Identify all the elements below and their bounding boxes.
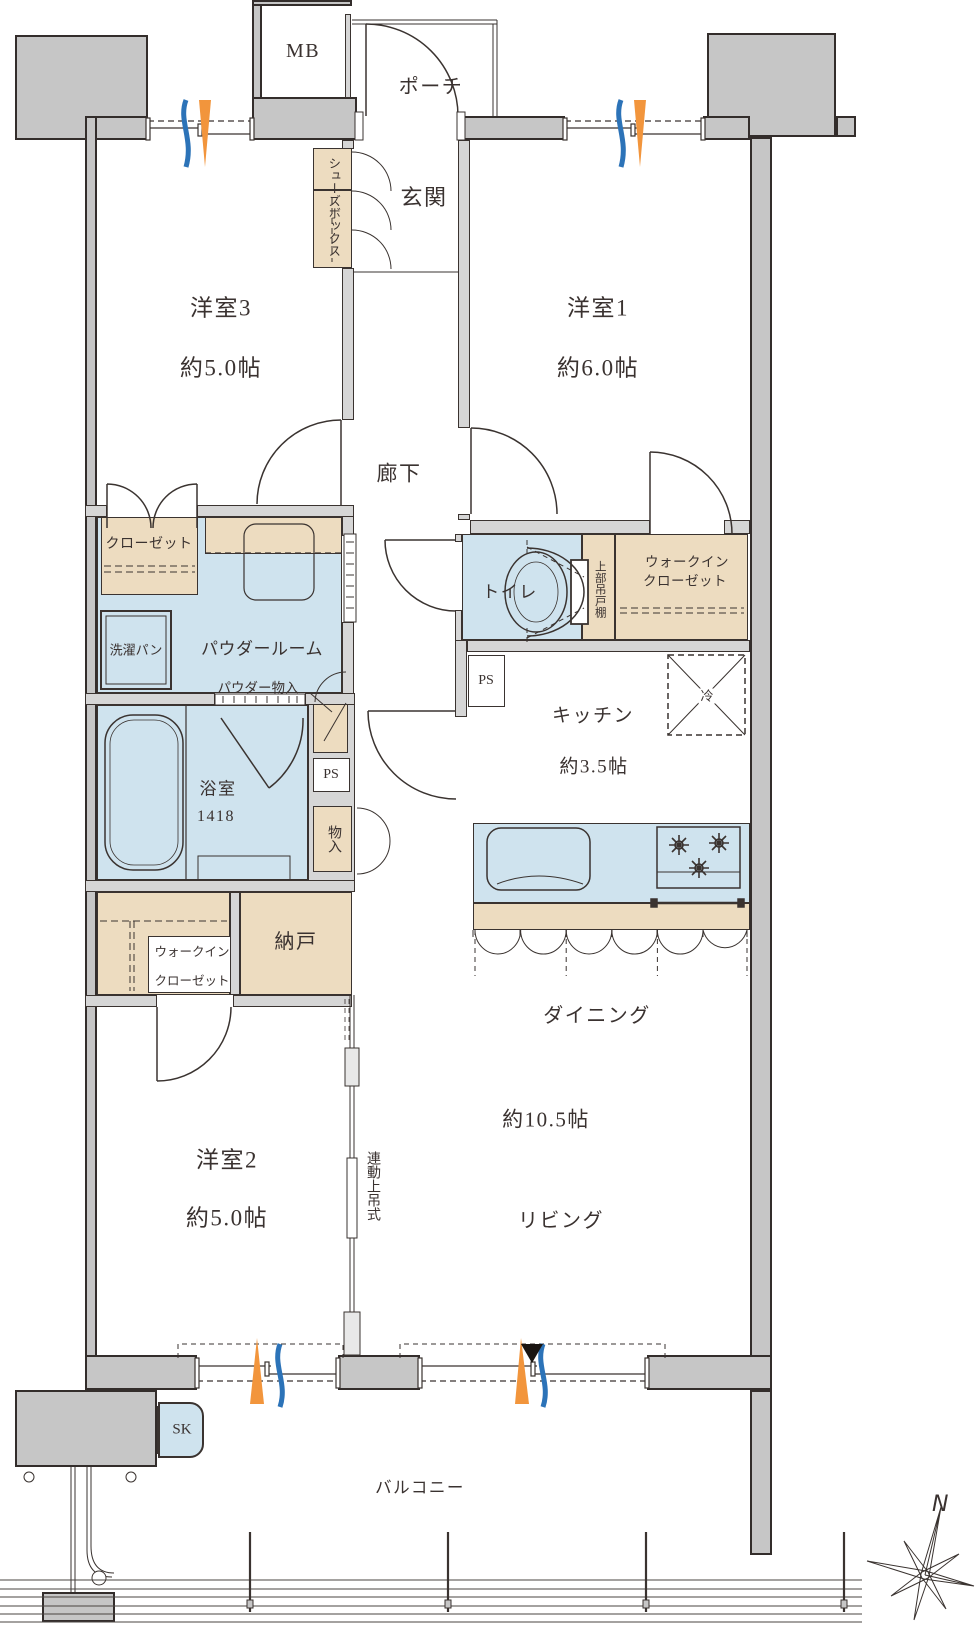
top-wall-right [703, 116, 750, 140]
bathroom-name: 浴室 [200, 781, 237, 798]
vent-orange-icon-y1 [634, 100, 646, 167]
vent-orange-icon-living [515, 1338, 529, 1404]
porch-parapet [352, 20, 497, 116]
powder-monoire-box [313, 701, 348, 753]
toilet-label: トイレ [482, 584, 538, 601]
porch-label: ポーチ [399, 77, 464, 97]
wall-nando-wic-divider [230, 892, 240, 995]
wall-y1-bottom-left [470, 520, 650, 534]
wall-kitchen-top [467, 640, 750, 652]
sliding-partition [344, 995, 360, 1355]
right-wall-balcony [750, 1390, 772, 1555]
right-wall [750, 137, 772, 1390]
vent-blue-icon-y2 [278, 1344, 283, 1407]
bottom-wall-2 [338, 1355, 420, 1390]
mb-wall-right [345, 14, 351, 98]
balcony-label: バルコニー [375, 1480, 465, 1497]
wall-nando-bottom-right [233, 995, 352, 1007]
kitchen-name: キッチン [552, 707, 634, 726]
vent-orange-icon-y2 [250, 1338, 264, 1404]
shutter-marker-icon [521, 1344, 543, 1363]
bottom-wall-1 [85, 1355, 197, 1390]
wall-powder-bottom-right [305, 693, 355, 705]
vanity-counter [205, 517, 342, 554]
floor-plan: MB ポーチ 玄関 シューズボックス 洋室3 約5.0帖 洋室1 約6.0帖 廊… [0, 0, 978, 1626]
door-living [368, 711, 456, 799]
living-dining-area: 約10.5帖 [502, 1110, 590, 1131]
closet-label: クローゼット [106, 538, 193, 552]
corridor-label: 廊下 [377, 464, 422, 485]
bottom-wall-3 [647, 1355, 772, 1390]
monoire-label: 物入 [326, 825, 340, 853]
wall-nando-bottom-left [85, 995, 157, 1007]
yoshitsu3-area: 約5.0帖 [180, 357, 262, 380]
door-monoire [357, 808, 390, 874]
window-yoshitsu1 [563, 118, 705, 140]
balcony-railing [0, 1580, 862, 1622]
wic-lower-label-1: ウォークイン [154, 946, 229, 959]
yoshitsu3-name: 洋室3 [190, 297, 252, 320]
window-yoshitsu3 [146, 118, 254, 140]
living-label: リビング [518, 1211, 604, 1231]
wall-y3-bottom-right [197, 505, 354, 517]
door-yoshitsu2 [157, 1007, 231, 1081]
wall-y3-corridor-top [342, 140, 354, 149]
shoes-box-label: シューズボックス [327, 157, 340, 257]
nando-label: 納戸 [275, 932, 318, 952]
top-wall-center [458, 116, 565, 140]
north-label: N [932, 1494, 950, 1516]
wall-toilet-left [455, 610, 462, 642]
vent-blue-icon-living [541, 1344, 546, 1407]
door-wic-upper [650, 452, 732, 534]
balcony-pipes [24, 1467, 136, 1592]
wall-y3-bottom-left [85, 505, 107, 517]
closet-box [101, 517, 198, 595]
pillar-top-right-step [836, 116, 856, 137]
mb-wall-bottom [252, 97, 357, 140]
ps-kitchen-label: PS [478, 674, 494, 688]
vent-blue-icon-y1 [619, 100, 624, 167]
wic-upper-label-2: クローゼット [643, 574, 727, 588]
compass-icon [867, 1507, 974, 1620]
counter-scallops [475, 930, 747, 976]
fridge-label: 冷 [698, 689, 715, 704]
vent-orange-icon-y3 [199, 100, 211, 167]
genkan-label: 玄関 [400, 187, 447, 209]
kitchen-area: 約3.5帖 [559, 758, 628, 777]
door-toilet [385, 540, 456, 611]
wall-y3-corridor [342, 268, 354, 420]
powder-room-label: パウダールーム [201, 641, 323, 658]
wall-kitchen-left [455, 640, 467, 717]
yoshitsu1-area: 約6.0帖 [557, 357, 639, 380]
window-living [400, 1344, 665, 1388]
sliding-door-bath [215, 694, 305, 705]
wall-corridor-y1 [458, 140, 470, 428]
powder-monoire-label: パウダー物入 [218, 681, 299, 695]
wall-y1-bottom-right [724, 520, 750, 534]
upper-cabinet-label: 上部吊戸棚 [593, 560, 605, 618]
left-wall [85, 116, 97, 1390]
pillar-bottom-left [15, 1390, 157, 1467]
door-yoshitsu1 [471, 428, 557, 514]
mb-label: MB [286, 41, 320, 61]
ps-shaft-label: PS [323, 768, 339, 782]
wall-bath-bottom [85, 880, 355, 892]
door-yoshitsu3 [257, 420, 341, 505]
wall-toilet-jamb-top [455, 534, 462, 542]
wall-powder-bottom-left [85, 693, 215, 705]
wic-upper-label-1: ウォークイン [645, 555, 729, 569]
yoshitsu2-area: 約5.0帖 [186, 1207, 268, 1230]
sliding-door-powder [344, 534, 356, 622]
yoshitsu1-name: 洋室1 [567, 297, 629, 320]
dining-label: ダイニング [543, 1006, 651, 1026]
laundry-pan-label: 洗濯パン [110, 644, 163, 657]
wall-powder-corridor-b [342, 622, 354, 695]
wic-lower-label-2: クローゼット [154, 975, 229, 988]
kitchen-counter [473, 823, 750, 903]
bathroom-size: 1418 [197, 809, 235, 825]
mb-wall-top [252, 0, 352, 6]
counter-ticks [473, 930, 747, 937]
sk-label: SK [172, 1423, 191, 1438]
window-yoshitsu2 [178, 1344, 343, 1388]
yoshitsu2-name: 洋室2 [196, 1149, 258, 1172]
balcony-curb [42, 1592, 115, 1622]
wall-corridor-y1-jamb [458, 514, 470, 520]
kitchen-counter-base [473, 903, 750, 930]
sliding-partition-label: 連動上吊式 [365, 1151, 379, 1221]
vent-blue-icon-y3 [184, 100, 189, 167]
